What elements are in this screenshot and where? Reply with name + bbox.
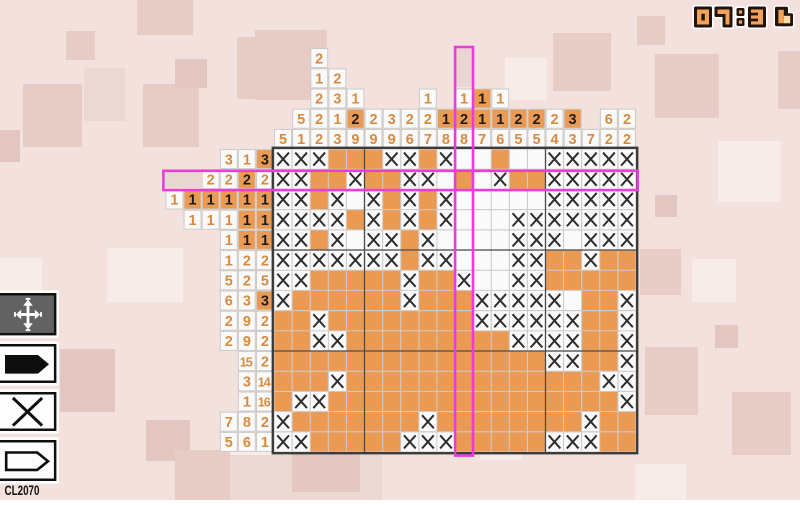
svg-text:2: 2 <box>225 314 233 330</box>
svg-text:9: 9 <box>388 132 396 148</box>
svg-text:1: 1 <box>225 193 233 209</box>
svg-text:1: 1 <box>261 435 269 451</box>
svg-text:1: 1 <box>189 193 197 209</box>
svg-text:2: 2 <box>605 132 613 148</box>
svg-text:5: 5 <box>532 132 540 148</box>
svg-text:2: 2 <box>460 112 468 128</box>
svg-text:1: 1 <box>351 92 359 108</box>
svg-text:3: 3 <box>261 152 269 168</box>
svg-text:9: 9 <box>243 314 251 330</box>
svg-text:2: 2 <box>261 415 269 431</box>
svg-text:3: 3 <box>225 152 233 168</box>
svg-text:2: 2 <box>243 173 251 189</box>
svg-text:2: 2 <box>424 112 432 128</box>
svg-text:5: 5 <box>514 132 522 148</box>
svg-text:2: 2 <box>261 334 269 350</box>
svg-text:1: 1 <box>333 112 341 128</box>
svg-text:9: 9 <box>370 132 378 148</box>
svg-text:6: 6 <box>496 132 504 148</box>
svg-text:2: 2 <box>243 274 251 290</box>
svg-text:2: 2 <box>315 92 323 108</box>
svg-text:14: 14 <box>258 376 271 390</box>
svg-text:1: 1 <box>297 132 305 148</box>
svg-text:15: 15 <box>240 355 253 369</box>
svg-text:2: 2 <box>261 354 269 370</box>
svg-text:1: 1 <box>243 233 251 249</box>
svg-text:3: 3 <box>388 112 396 128</box>
svg-text:1: 1 <box>207 213 215 229</box>
svg-text:5: 5 <box>297 112 305 128</box>
svg-text:1: 1 <box>442 112 450 128</box>
svg-text:1: 1 <box>496 92 504 108</box>
svg-text:7: 7 <box>424 132 432 148</box>
svg-text:5: 5 <box>225 435 233 451</box>
svg-text:5: 5 <box>279 132 287 148</box>
svg-text:2: 2 <box>623 132 631 148</box>
svg-text:2: 2 <box>315 132 323 148</box>
svg-text:1: 1 <box>460 92 468 108</box>
svg-text:1: 1 <box>261 233 269 249</box>
svg-text:2: 2 <box>261 253 269 269</box>
svg-text:6: 6 <box>243 435 251 451</box>
svg-text:2: 2 <box>261 314 269 330</box>
svg-text:1: 1 <box>243 152 251 168</box>
svg-text:2: 2 <box>261 173 269 189</box>
svg-text:9: 9 <box>243 334 251 350</box>
svg-text:1: 1 <box>315 72 323 88</box>
svg-text:1: 1 <box>207 193 215 209</box>
svg-text:9: 9 <box>351 132 359 148</box>
svg-text:3: 3 <box>243 375 251 391</box>
svg-text:5: 5 <box>261 274 269 290</box>
svg-text:2: 2 <box>315 51 323 67</box>
svg-text:7: 7 <box>587 132 595 148</box>
svg-text:1: 1 <box>243 193 251 209</box>
svg-text:2: 2 <box>351 112 359 128</box>
svg-text:3: 3 <box>569 132 577 148</box>
svg-text:1: 1 <box>225 233 233 249</box>
svg-text:CL2070: CL2070 <box>5 482 40 498</box>
svg-text:2: 2 <box>370 112 378 128</box>
svg-text:1: 1 <box>170 193 178 209</box>
svg-text:4: 4 <box>550 132 558 148</box>
svg-text:3: 3 <box>333 132 341 148</box>
svg-text:1: 1 <box>478 112 486 128</box>
svg-text:2: 2 <box>207 173 215 189</box>
svg-text:2: 2 <box>532 112 540 128</box>
svg-text:1: 1 <box>189 213 197 229</box>
svg-text:2: 2 <box>406 112 414 128</box>
svg-text:2: 2 <box>225 173 233 189</box>
svg-text:1: 1 <box>243 395 251 411</box>
svg-text:1: 1 <box>225 253 233 269</box>
svg-text:2: 2 <box>243 253 251 269</box>
svg-text:6: 6 <box>225 294 233 310</box>
svg-text:8: 8 <box>243 415 251 431</box>
svg-text:2: 2 <box>333 72 341 88</box>
svg-text:1: 1 <box>225 213 233 229</box>
svg-text:1: 1 <box>496 112 504 128</box>
svg-text:2: 2 <box>225 334 233 350</box>
svg-text:2: 2 <box>550 112 558 128</box>
svg-text:16: 16 <box>258 396 271 410</box>
svg-text:1: 1 <box>424 92 432 108</box>
svg-text:1: 1 <box>261 193 269 209</box>
svg-text:6: 6 <box>605 112 613 128</box>
svg-text:6: 6 <box>406 132 414 148</box>
svg-text:1: 1 <box>478 92 486 108</box>
svg-text:1: 1 <box>243 213 251 229</box>
svg-text:1: 1 <box>261 213 269 229</box>
svg-text:2: 2 <box>514 112 522 128</box>
svg-text:3: 3 <box>261 294 269 310</box>
svg-text:3: 3 <box>333 92 341 108</box>
svg-text:3: 3 <box>569 112 577 128</box>
svg-text:2: 2 <box>623 112 631 128</box>
svg-text:8: 8 <box>460 132 468 148</box>
svg-text:5: 5 <box>225 274 233 290</box>
svg-text:2: 2 <box>315 112 323 128</box>
svg-text:8: 8 <box>442 132 450 148</box>
svg-text:3: 3 <box>243 294 251 310</box>
svg-text:7: 7 <box>225 415 233 431</box>
svg-text:7: 7 <box>478 132 486 148</box>
